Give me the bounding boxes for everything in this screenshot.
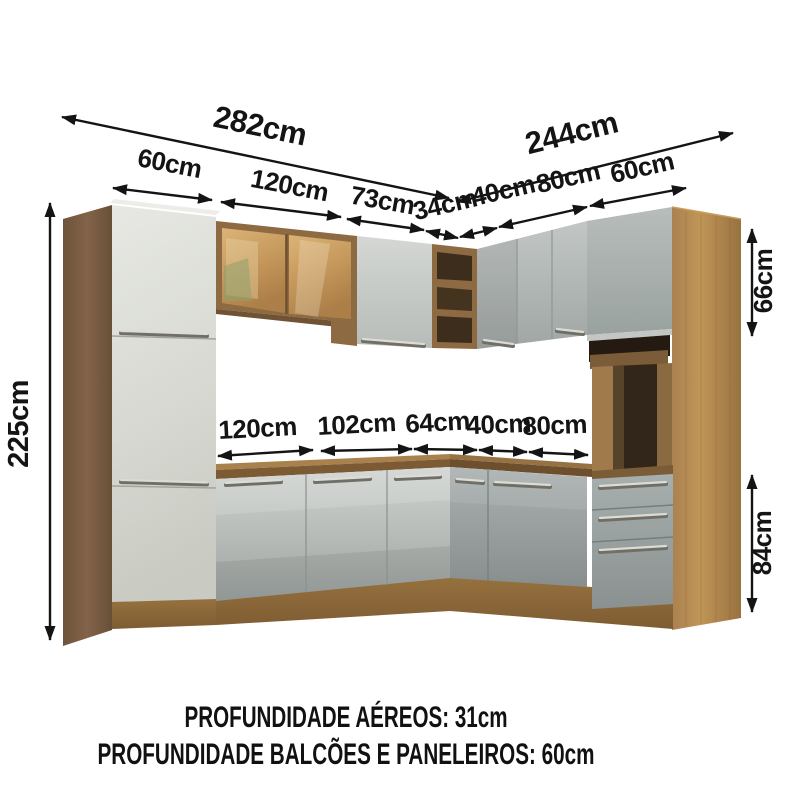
- dim-label-height: 225cm: [3, 380, 35, 468]
- depth-note-balcoes: PROFUNDIDADE BALCÕES E PANELEIROS: 60cm: [98, 737, 595, 771]
- niche-left-stile: [592, 366, 613, 477]
- dim-label: 73cm: [348, 180, 417, 221]
- dim-arrow: [218, 450, 313, 456]
- dim-arrow: [499, 207, 587, 227]
- base-cabinets-right: [450, 467, 587, 587]
- dim-label: 80cm: [533, 155, 603, 199]
- dim-arrow: [321, 449, 412, 451]
- dim-label: 60cm: [607, 145, 677, 189]
- dim-base-right-84: 84cm: [747, 475, 777, 612]
- dim-arrow: [414, 449, 477, 450]
- dim-label: 66cm: [748, 249, 778, 314]
- depth-note-aereos: PROFUNDIDADE AÉREOS: 31cm: [185, 700, 508, 734]
- shelf-compartment: [437, 252, 472, 281]
- pantry-doors: [112, 205, 216, 605]
- dim-label: 120cm: [218, 411, 298, 445]
- dim-top-60-right: 60cm: [590, 145, 686, 206]
- dim-label: 64cm: [405, 405, 471, 438]
- dim-arrow: [460, 228, 497, 237]
- cabinet-handle: [457, 479, 483, 483]
- dim-label-282: 282cm: [211, 99, 310, 153]
- dim-upper-right-66: 66cm: [748, 229, 778, 336]
- product-dimension-diagram: 282cm 244cm 60cm 120cm 73cm 34cm 40cm: [0, 0, 800, 800]
- niche-inner-highlight: [613, 365, 624, 475]
- dim-top-60-left: 60cm: [113, 142, 212, 200]
- shelf-compartment: [437, 287, 472, 311]
- wall-cabinet-73: [357, 236, 432, 348]
- dim-arrow: [426, 231, 458, 238]
- dim-label: 60cm: [135, 142, 204, 184]
- pantry-toe-kick: [112, 599, 216, 629]
- wall-cabinet-73-door: [357, 236, 432, 348]
- dim-label: 40cm: [468, 168, 538, 212]
- niche-right-stile: [657, 363, 672, 473]
- dim-arrow: [529, 452, 588, 455]
- tower-upper-door: [587, 207, 672, 335]
- dim-arrow: [590, 188, 686, 206]
- door-shading: [477, 239, 517, 349]
- pantry-cabinet: [63, 199, 220, 646]
- dim-arrow: [479, 450, 527, 452]
- dim-mid-102: 102cm: [317, 407, 412, 451]
- dim-label: 84cm: [747, 511, 777, 576]
- dim-arrow: [113, 188, 212, 200]
- base-cabinets-left: [216, 467, 450, 601]
- dim-mid-80: 80cm: [522, 409, 588, 455]
- dim-mid-120: 120cm: [218, 411, 313, 456]
- corner-wood-return: [331, 319, 357, 346]
- corner-wall-cabinets: [477, 221, 587, 349]
- open-shelf-unit: [432, 244, 477, 349]
- cabinet-handle: [396, 475, 440, 479]
- dim-label: 80cm: [522, 409, 588, 441]
- depth-notes: PROFUNDIDADE AÉREOS: 31cm PROFUNDIDADE B…: [98, 700, 595, 771]
- glass-wall-cabinet: [216, 221, 357, 346]
- tower-side-panel: [672, 207, 741, 630]
- shelf-compartment: [437, 316, 472, 343]
- kitchen-illustration: [63, 199, 741, 646]
- dim-label-244: 244cm: [522, 104, 622, 161]
- dim-arrow: [347, 219, 424, 230]
- dim-height-225: 225cm: [3, 203, 50, 640]
- dim-label: 102cm: [317, 407, 397, 441]
- pantry-side-panel: [63, 205, 112, 646]
- kitchen-dimensions-svg: 282cm 244cm 60cm 120cm 73cm 34cm 40cm: [0, 0, 800, 800]
- drawer-stack: [592, 465, 673, 609]
